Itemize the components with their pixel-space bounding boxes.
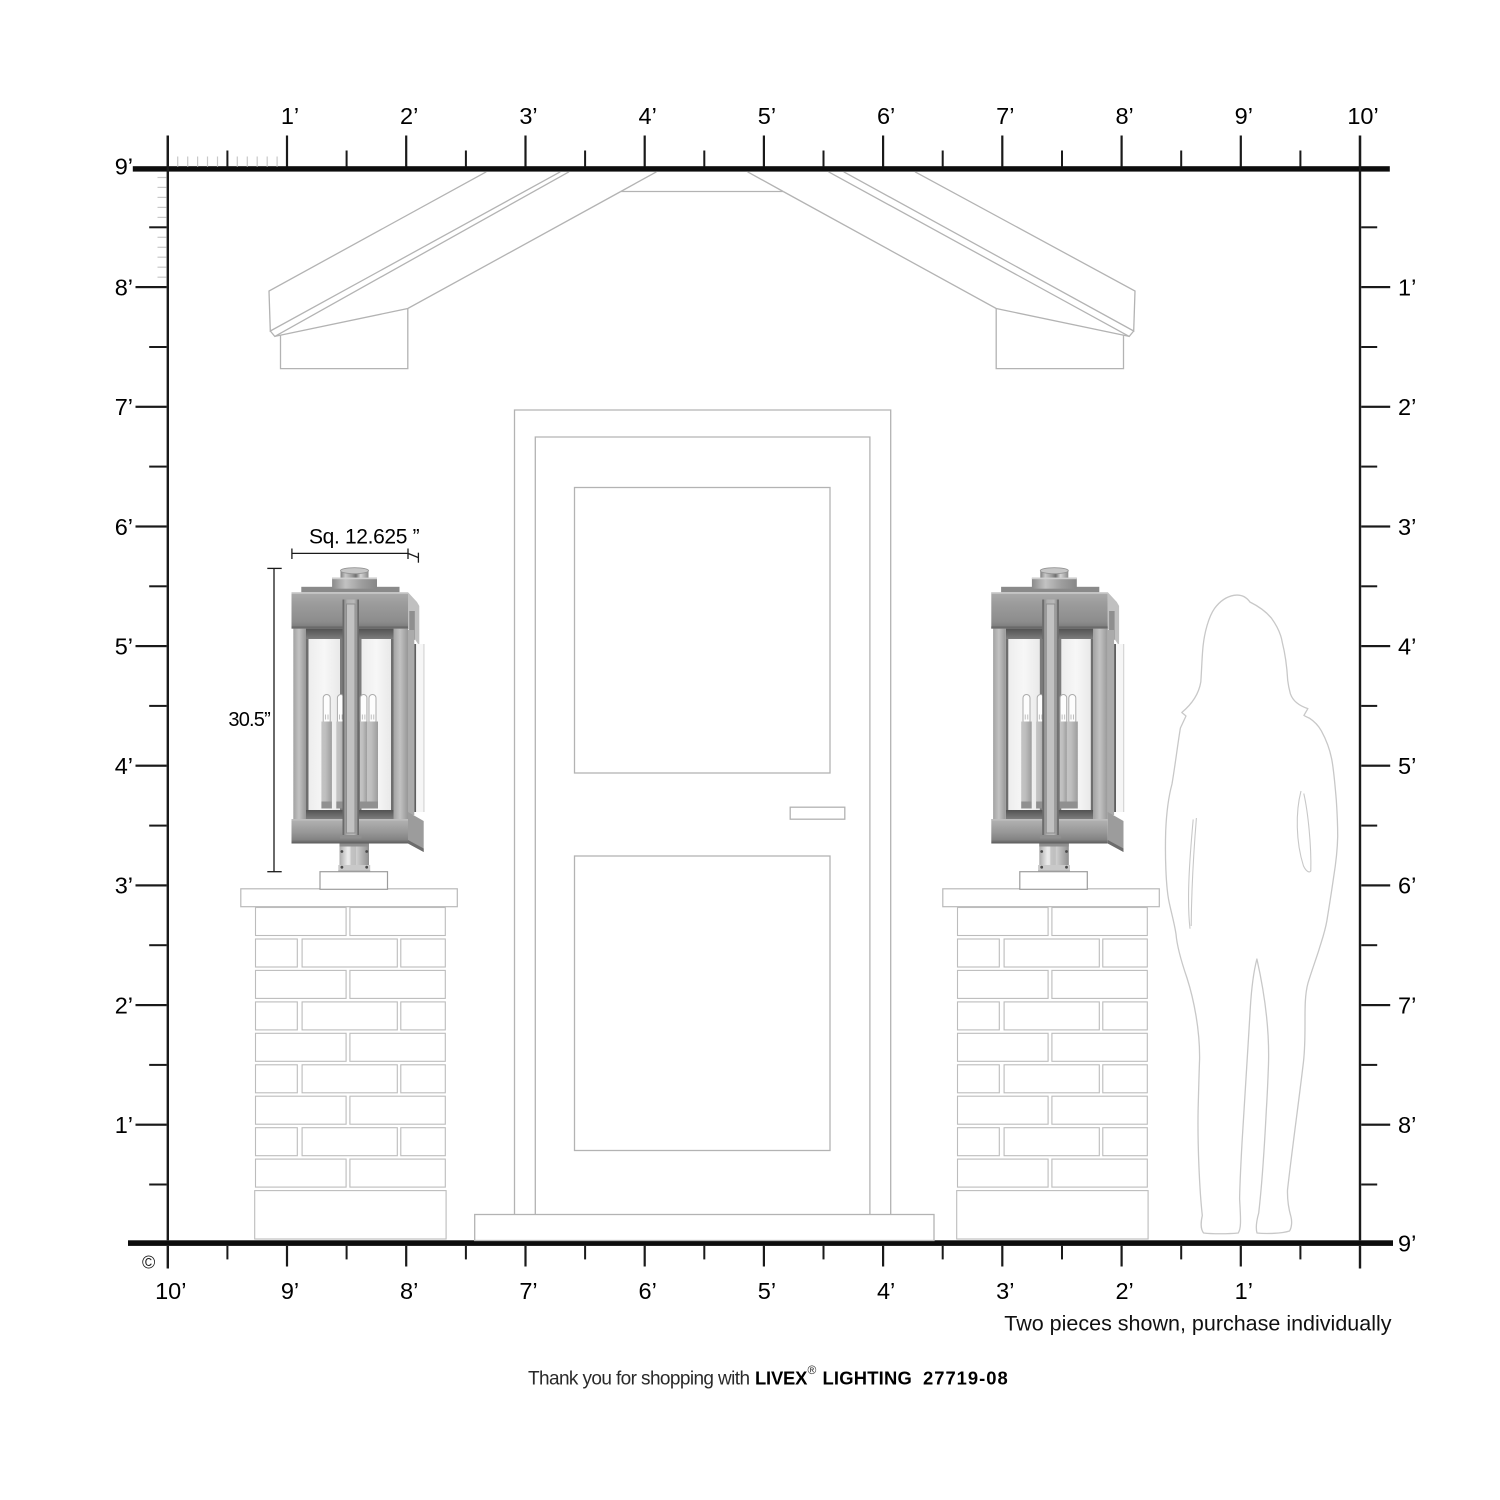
- svg-text:1’: 1’: [115, 1112, 133, 1138]
- svg-text:5’: 5’: [115, 633, 133, 659]
- svg-text:6’: 6’: [115, 514, 133, 540]
- svg-text:4’: 4’: [1398, 633, 1416, 659]
- svg-text:6’: 6’: [877, 103, 895, 129]
- svg-text:9’: 9’: [281, 1278, 299, 1304]
- svg-text:4’: 4’: [115, 753, 133, 779]
- svg-text:30.5”: 30.5”: [228, 709, 270, 731]
- svg-text:4’: 4’: [877, 1278, 895, 1304]
- svg-text:7’: 7’: [519, 1278, 537, 1304]
- svg-text:1’: 1’: [1235, 1278, 1253, 1304]
- svg-text:3’: 3’: [519, 103, 537, 129]
- svg-text:LIVEX: LIVEX: [755, 1368, 808, 1389]
- svg-text:1’: 1’: [1398, 274, 1416, 300]
- svg-text:3’: 3’: [115, 873, 133, 899]
- svg-text:5’: 5’: [758, 1278, 776, 1304]
- svg-text:2’: 2’: [400, 103, 418, 129]
- svg-text:27719-08: 27719-08: [923, 1368, 1009, 1389]
- svg-text:5’: 5’: [1398, 753, 1416, 779]
- svg-text:8’: 8’: [1115, 103, 1133, 129]
- svg-text:7’: 7’: [996, 103, 1014, 129]
- svg-text:®: ®: [808, 1363, 817, 1377]
- svg-text:10’: 10’: [1347, 103, 1378, 129]
- svg-text:Thank you for shopping with: Thank you for shopping with: [528, 1369, 749, 1390]
- svg-text:LIGHTING: LIGHTING: [823, 1368, 912, 1389]
- svg-text:9’: 9’: [115, 154, 133, 180]
- svg-text:1’: 1’: [281, 103, 299, 129]
- svg-text:2’: 2’: [1115, 1278, 1133, 1304]
- svg-text:9’: 9’: [1398, 1231, 1416, 1257]
- svg-text:7’: 7’: [1398, 992, 1416, 1018]
- svg-text:10’: 10’: [155, 1278, 186, 1304]
- svg-text:2’: 2’: [115, 992, 133, 1018]
- svg-text:8’: 8’: [400, 1278, 418, 1304]
- svg-text:6’: 6’: [1398, 873, 1416, 899]
- svg-text:9’: 9’: [1235, 103, 1253, 129]
- svg-text:Sq. 12.625 ”: Sq. 12.625 ”: [309, 526, 420, 549]
- svg-text:3’: 3’: [996, 1278, 1014, 1304]
- svg-text:8’: 8’: [115, 274, 133, 300]
- svg-text:6’: 6’: [639, 1278, 657, 1304]
- svg-text:8’: 8’: [1398, 1112, 1416, 1138]
- svg-text:2’: 2’: [1398, 394, 1416, 420]
- svg-text:7’: 7’: [115, 394, 133, 420]
- svg-text:©: ©: [142, 1253, 155, 1273]
- svg-text:4’: 4’: [639, 103, 657, 129]
- svg-text:Two pieces shown, purchase ind: Two pieces shown, purchase individually: [1004, 1312, 1391, 1336]
- svg-text:3’: 3’: [1398, 514, 1416, 540]
- svg-text:5’: 5’: [758, 103, 776, 129]
